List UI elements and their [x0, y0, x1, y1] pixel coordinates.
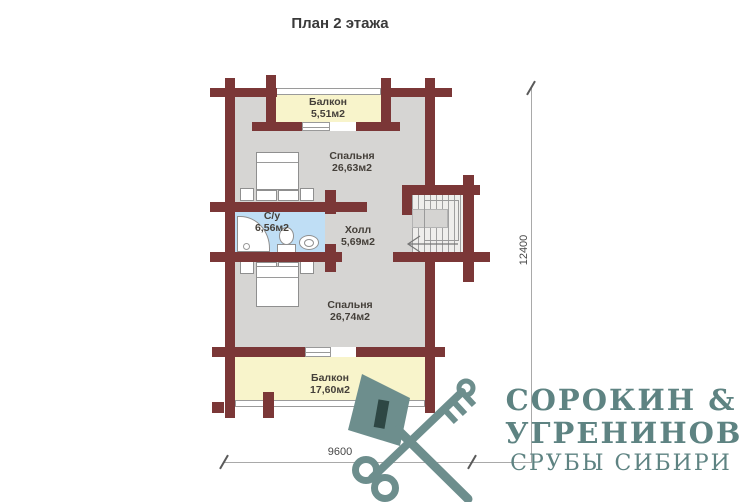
room-name: Спальня [302, 150, 402, 162]
logo-name-line1: СОРОКИН & [505, 384, 737, 416]
room-name: Спальня [300, 299, 400, 311]
wall-hall-south-left [210, 252, 342, 262]
wall-top-right-segment [381, 88, 452, 97]
page-title: План 2 этажа [255, 15, 425, 32]
room-name: Балкон [288, 96, 368, 108]
nightstand [300, 261, 314, 274]
log-stub-bottom-left [212, 402, 224, 413]
room-label-balcony-top: Балкон 5,51м2 [288, 96, 368, 120]
nightstand [300, 188, 314, 201]
shower-drain [243, 243, 250, 250]
floor-plan-canvas: План 2 этажа [0, 0, 753, 502]
wall-bedroom-bottom-south-a [212, 347, 305, 357]
room-label-bathroom: С/у 6,56м2 [242, 210, 302, 234]
room-area: 26,63м2 [302, 162, 402, 174]
room-name: Холл [318, 224, 398, 236]
dimension-value-vertical: 12400 [518, 228, 532, 272]
logo-tagline: СРУБЫ СИБИРИ [505, 450, 737, 477]
nightstand [240, 188, 254, 201]
room-name: С/у [242, 210, 302, 222]
wall-top-left-segment [210, 88, 277, 97]
dresser [278, 190, 299, 201]
sink-basin [304, 239, 314, 247]
room-label-hall: Холл 5,69м2 [318, 224, 398, 248]
window [305, 347, 331, 357]
wall-balcony-top-bottom-b [356, 122, 400, 131]
wall-left [225, 78, 235, 418]
room-label-bedroom-bottom: Спальня 26,74м2 [300, 299, 400, 323]
room-area: 5,51м2 [288, 108, 368, 120]
wall-hall-south-right [393, 252, 490, 262]
wall-balcony-top-bottom-a [252, 122, 302, 131]
nightstand [240, 261, 254, 274]
bed [256, 152, 299, 190]
wall-stair-top [402, 185, 480, 195]
bed [256, 266, 299, 307]
balcony-post [263, 392, 274, 418]
logo-name-line2: УГРЕНИНОВ [505, 416, 737, 450]
room-area: 6,56м2 [242, 222, 302, 234]
room-area: 5,69м2 [318, 236, 398, 248]
dresser [256, 190, 277, 201]
room-area: 26,74м2 [300, 311, 400, 323]
room-label-bedroom-top: Спальня 26,63м2 [302, 150, 402, 174]
logo-wordmark: СОРОКИН & УГРЕНИНОВ СРУБЫ СИБИРИ [505, 384, 737, 477]
balcony-top-railing [276, 88, 381, 95]
window [302, 122, 330, 131]
